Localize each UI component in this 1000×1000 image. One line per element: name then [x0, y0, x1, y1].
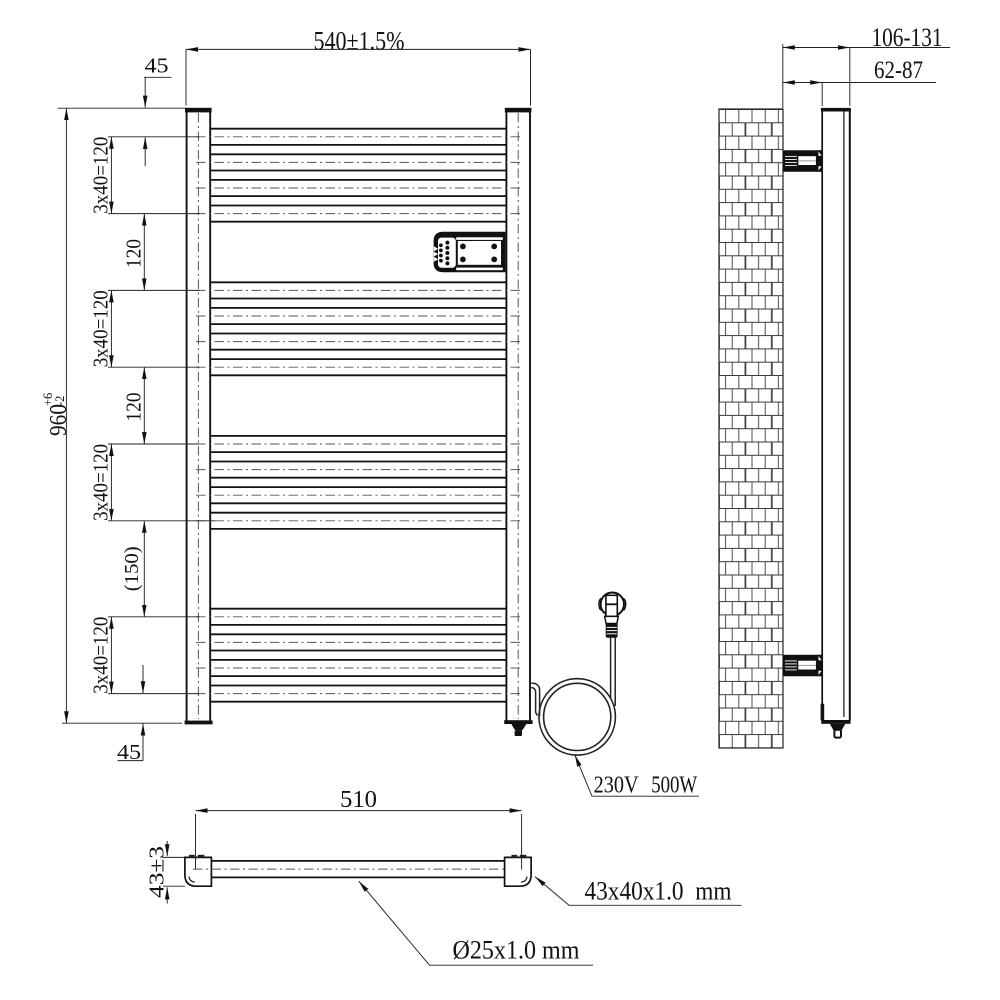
svg-text:3x40=120: 3x40=120	[89, 290, 113, 367]
svg-text:43x40x1.0 mm: 43x40x1.0 mm	[585, 876, 732, 905]
svg-text:960: 960	[46, 404, 72, 436]
svg-text:120: 120	[122, 393, 146, 422]
svg-text:3x40=120: 3x40=120	[89, 137, 113, 214]
svg-text:540±1.5%: 540±1.5%	[314, 27, 405, 56]
svg-text:3x40=120: 3x40=120	[89, 617, 113, 694]
svg-text:3x40=120: 3x40=120	[89, 444, 113, 521]
svg-text:Ø25x1.0 mm: Ø25x1.0 mm	[453, 936, 580, 965]
svg-text:(150): (150)	[121, 546, 143, 591]
svg-text:45: 45	[145, 54, 169, 78]
svg-text:45: 45	[117, 740, 141, 764]
svg-text:43±3: 43±3	[145, 846, 169, 898]
svg-text:62-87: 62-87	[874, 57, 923, 84]
svg-text:510: 510	[340, 787, 377, 813]
svg-text:500W: 500W	[651, 773, 697, 799]
svg-text:120: 120	[122, 239, 146, 268]
svg-text:230V: 230V	[594, 773, 640, 799]
svg-text:-2: -2	[53, 396, 67, 406]
svg-text:106-131: 106-131	[872, 23, 943, 52]
